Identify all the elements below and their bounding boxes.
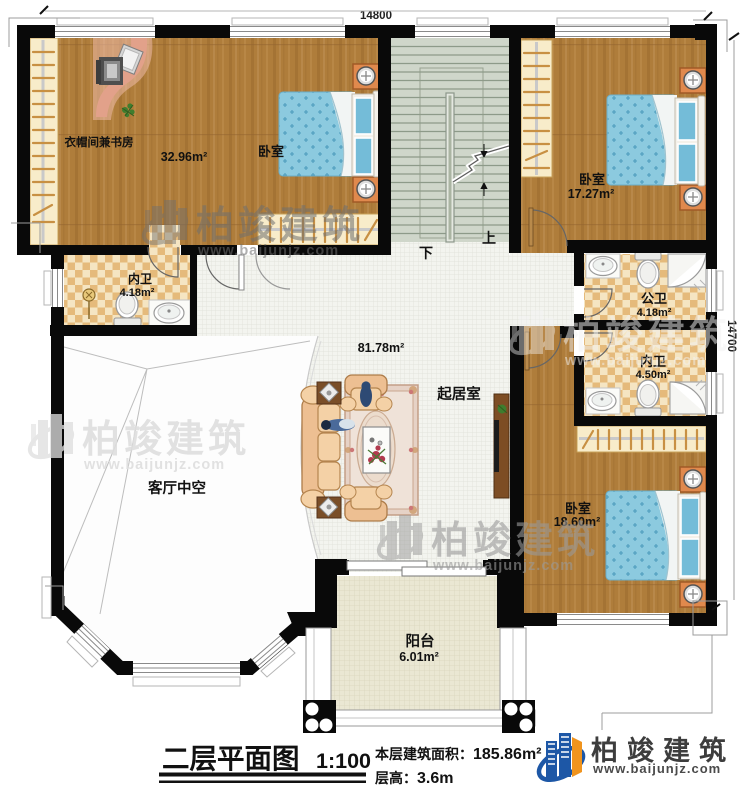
svg-text:下: 下	[419, 245, 433, 261]
svg-text:二层平面图: 二层平面图	[162, 743, 300, 774]
svg-text:起居室: 起居室	[436, 385, 481, 403]
svg-text:卧室: 卧室	[579, 172, 605, 187]
svg-text:阳台: 阳台	[406, 632, 435, 650]
svg-text:卧室: 卧室	[565, 501, 591, 516]
svg-text:4.50m²: 4.50m²	[636, 369, 671, 381]
svg-text:内卫: 内卫	[128, 271, 152, 286]
svg-text:81.78m²: 81.78m²	[358, 341, 405, 355]
svg-text:上: 上	[482, 230, 496, 246]
svg-text:1:100: 1:100	[316, 749, 371, 773]
svg-text:17.27m²: 17.27m²	[568, 187, 615, 201]
svg-text:6.01m²: 6.01m²	[399, 650, 439, 664]
svg-text:层高：3.6m: 层高：3.6m	[375, 770, 453, 787]
svg-text:衣帽间兼书房: 衣帽间兼书房	[65, 135, 134, 149]
svg-text:32.96m²: 32.96m²	[161, 150, 208, 164]
svg-text:本层建筑面积：185.86m²: 本层建筑面积：185.86m²	[375, 746, 542, 763]
svg-text:4.18m²: 4.18m²	[120, 287, 155, 299]
svg-text:卧室: 卧室	[258, 144, 284, 159]
svg-text:公卫: 公卫	[641, 291, 667, 306]
svg-text:14800: 14800	[360, 10, 392, 22]
svg-text:客厅中空: 客厅中空	[147, 479, 206, 497]
svg-text:www.baijunjz.com: www.baijunjz.com	[592, 761, 721, 776]
